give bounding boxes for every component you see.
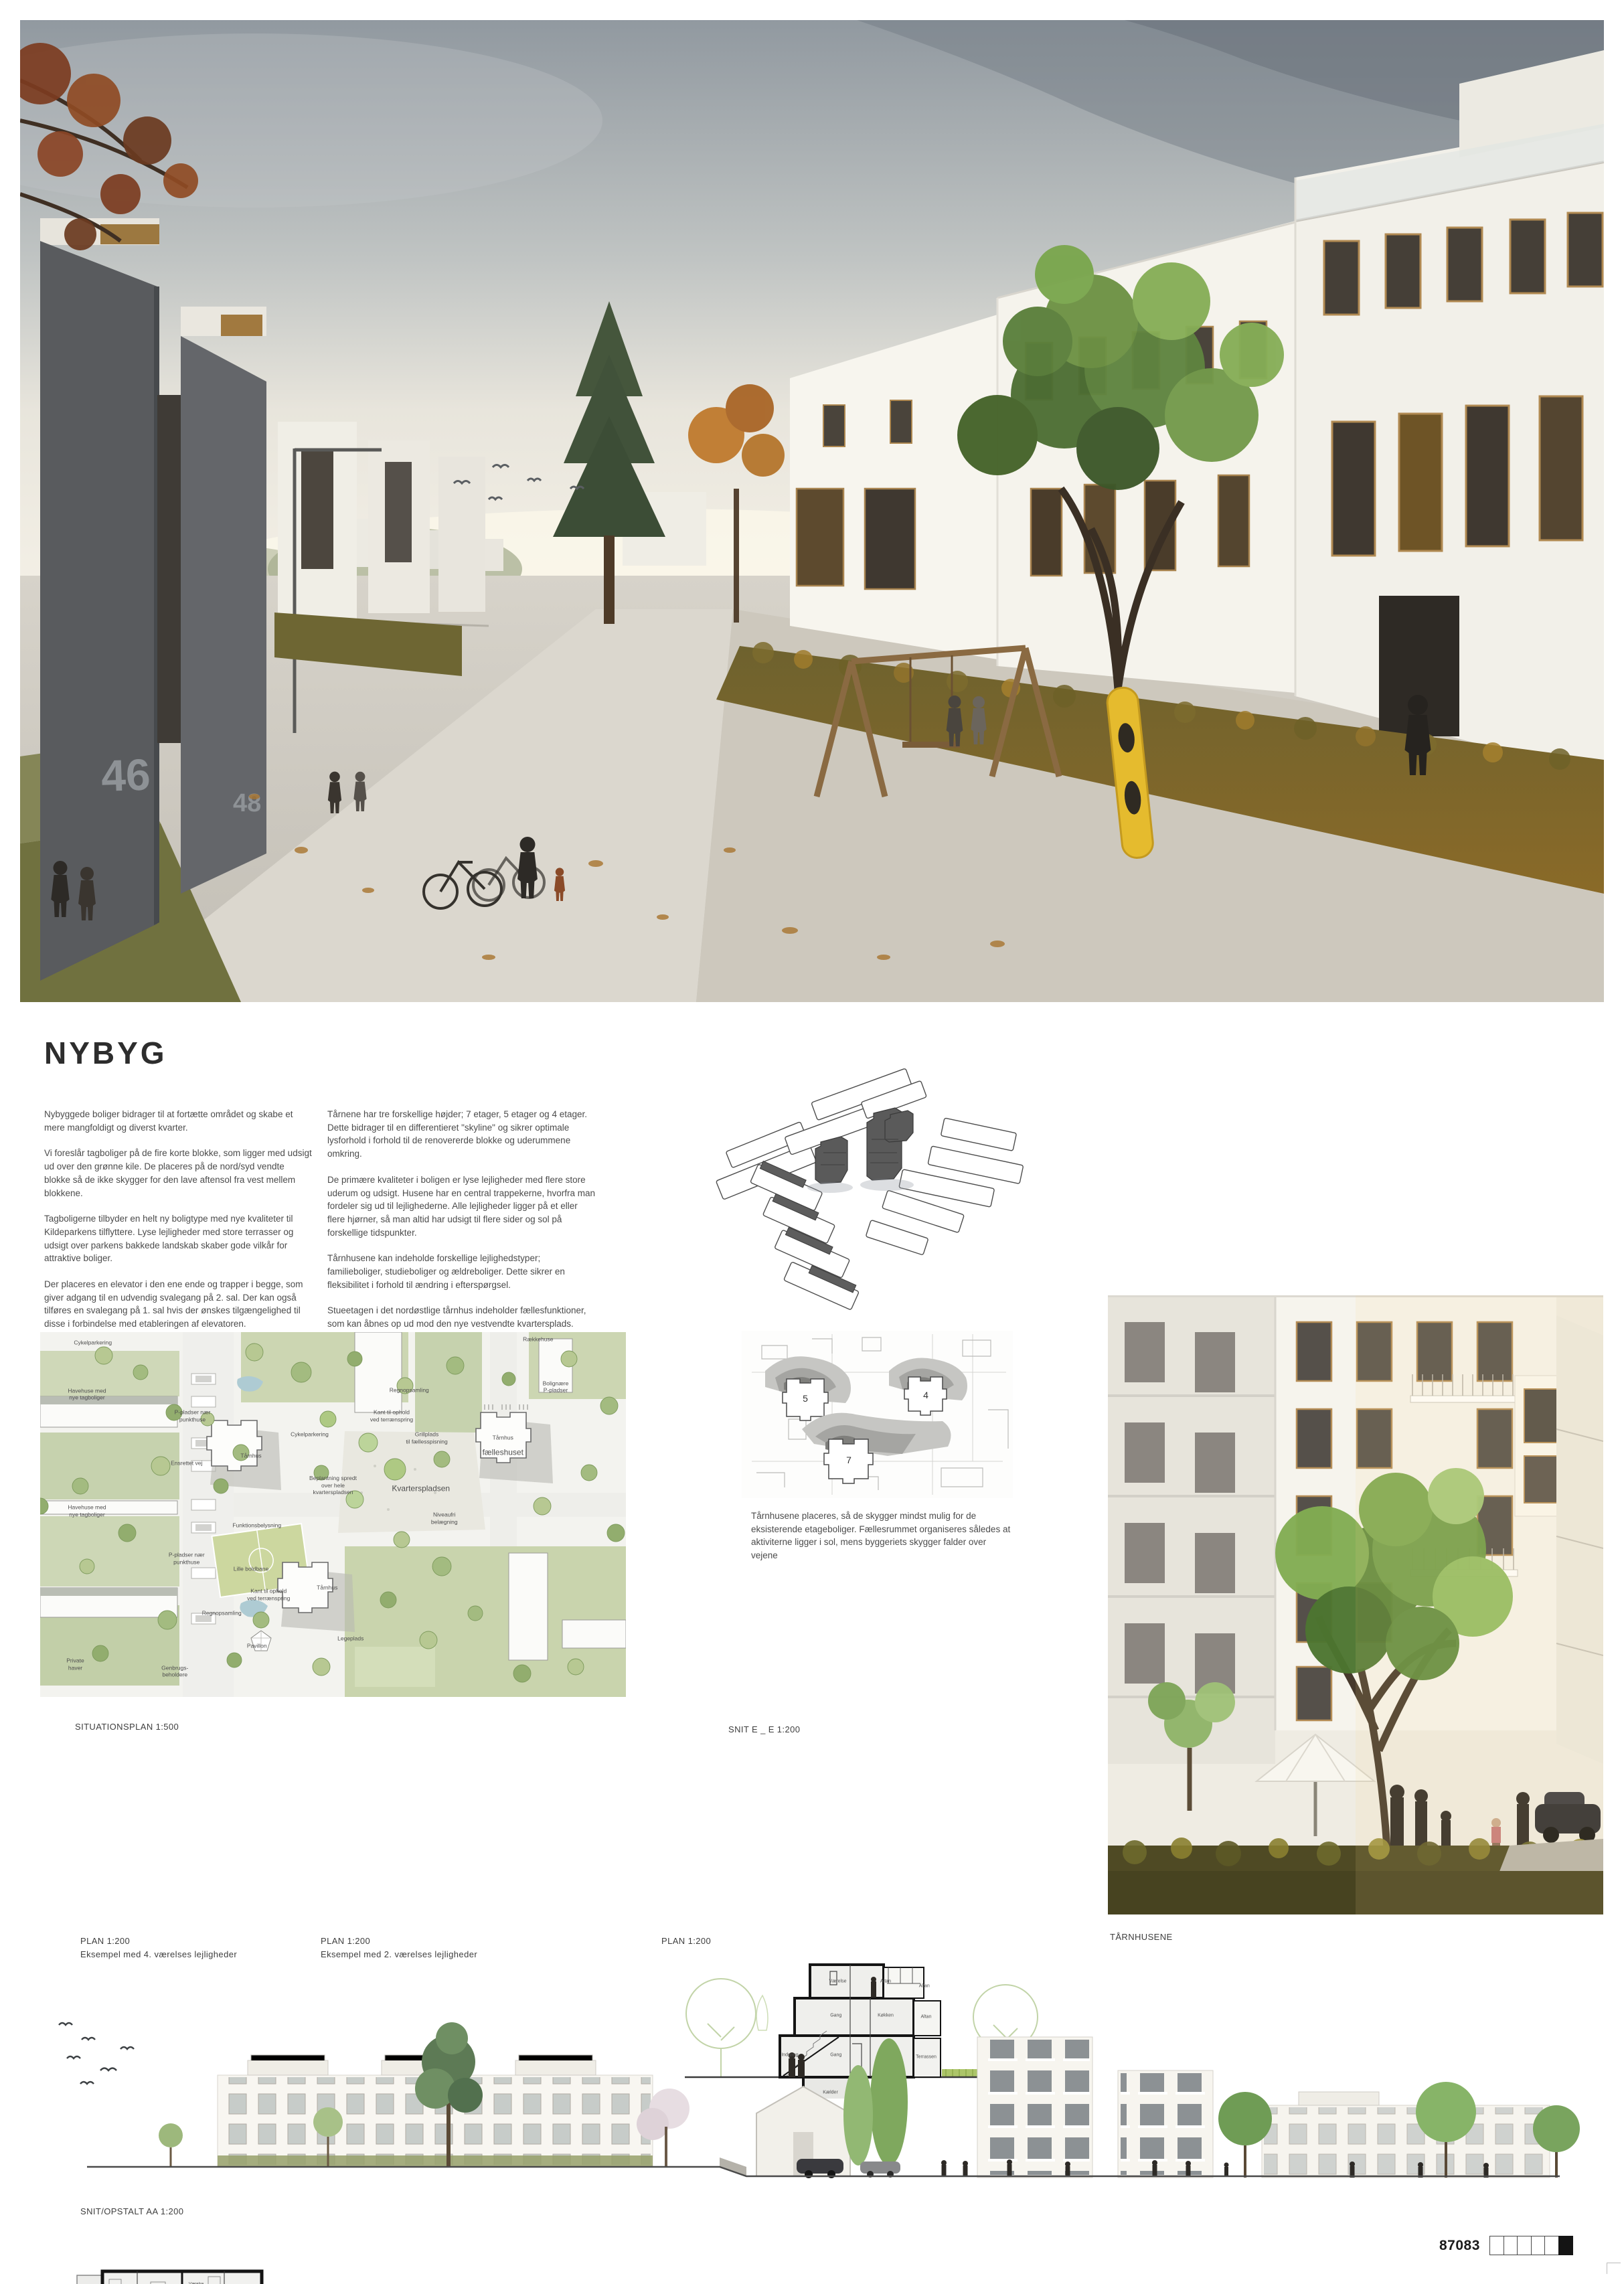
- tower-height-5: 5: [803, 1393, 808, 1404]
- presentation-board: 46 48: [0, 0, 1624, 2284]
- sheet-number: 87083: [1439, 2238, 1480, 2254]
- page-square: [1504, 2236, 1518, 2255]
- footer: 87083: [1439, 2236, 1573, 2255]
- paragraph: Vi foreslår tagboliger på de fire korte …: [44, 1147, 312, 1200]
- elevation-drawing: [47, 1998, 1587, 2199]
- tower-houses-rendering: [1108, 1295, 1603, 1914]
- paragraph: Tårnene har tre forskellige højder; 7 et…: [327, 1108, 595, 1161]
- page-square: [1517, 2236, 1532, 2255]
- house-number-48: 48: [233, 789, 261, 817]
- section-caption: SNIT E _ E 1:200: [728, 1723, 800, 1736]
- elevation-caption: SNIT/OPSTALT AA 1:200: [80, 2205, 183, 2218]
- paragraph: De primære kvaliteter i boligen er lyse …: [327, 1173, 595, 1240]
- tower-height-4: 4: [923, 1390, 928, 1400]
- plan-b-caption: PLAN 1:200 Eksempel med 2. værelses lejl…: [321, 1935, 477, 1961]
- page-indicator: [1491, 2236, 1573, 2255]
- paragraph: Nybyggede boliger bidrager til at fortæt…: [44, 1108, 312, 1134]
- house-number-46: 46: [100, 749, 151, 801]
- page-square: [1531, 2236, 1546, 2255]
- site-plan-caption: SITUATIONSPLAN 1:500: [75, 1720, 179, 1734]
- paragraph: Stueetagen i det nordøstlige tårnhus ind…: [327, 1304, 595, 1330]
- page-square: [1544, 2236, 1559, 2255]
- axonometric-diagram: [696, 1039, 1071, 1327]
- site-plan: CykelparkeringRækkehuseHavehuse med nye …: [40, 1332, 626, 1697]
- plan-a-caption: PLAN 1:200 Eksempel med 4. værelses lejl…: [80, 1935, 237, 1961]
- paragraph: Tagboligerne tilbyder en helt ny boligty…: [44, 1212, 312, 1265]
- page-square-active: [1558, 2236, 1573, 2255]
- paragraph: Tårnhusene kan indeholde forskellige lej…: [327, 1252, 595, 1291]
- corner-crop-mark: [1607, 2263, 1621, 2274]
- page-square: [1489, 2236, 1504, 2255]
- plan-c-caption: PLAN 1:200: [661, 1935, 711, 1948]
- floor-plan-4-room: AltanKøkkenVærelseVærelseStueBadVærelseA…: [70, 2262, 291, 2284]
- tower-height-7: 7: [846, 1455, 851, 1465]
- shadow-diagram: 5 4 7: [742, 1331, 1013, 1498]
- page-title: NYBYG: [44, 1035, 167, 1071]
- tower-render-caption: TÅRNHUSENE: [1110, 1931, 1173, 1944]
- hero-rendering: 46 48: [20, 20, 1604, 1002]
- paragraph: Der placeres en elevator i den ene ende …: [44, 1278, 312, 1331]
- shadow-diagram-note: Tårnhusene placeres, så de skygger minds…: [751, 1510, 1013, 1562]
- hero-rendering-image: 46 48: [20, 20, 1604, 1002]
